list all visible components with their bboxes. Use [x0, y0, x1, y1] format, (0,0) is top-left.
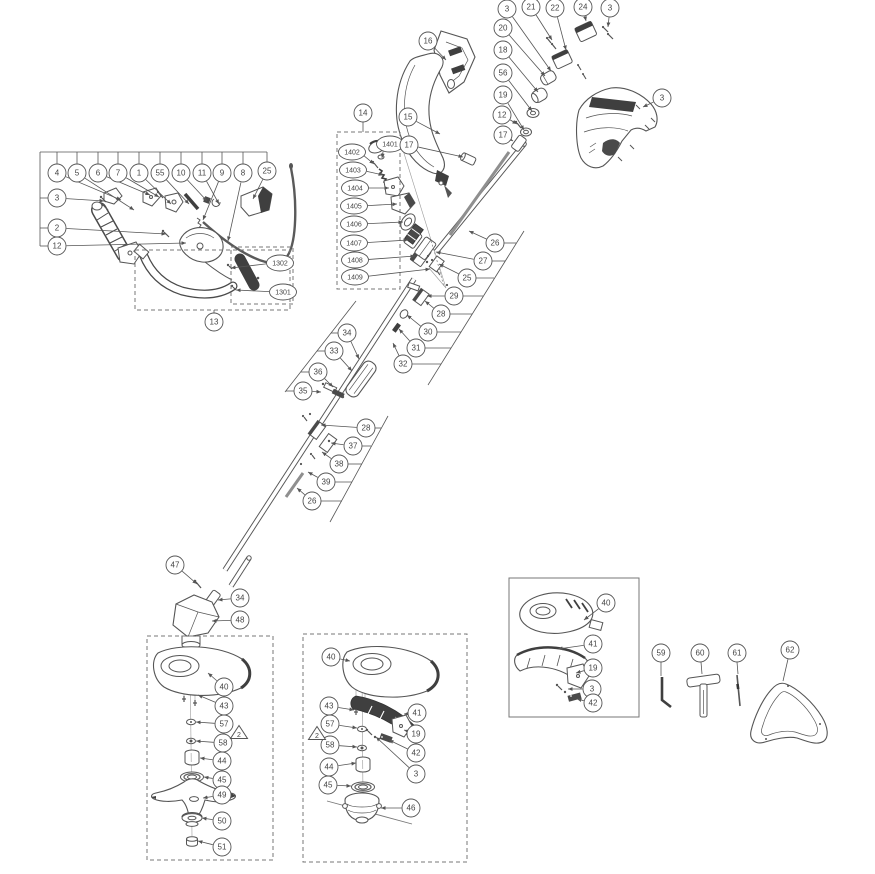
leader-line-45 — [337, 785, 351, 786]
callout-number: 57 — [326, 720, 335, 729]
callout-number: 59 — [657, 649, 666, 658]
callout-3: 3 — [601, 0, 619, 17]
callout-35: 35 — [294, 382, 312, 400]
callout-1403: 1403 — [340, 162, 367, 178]
connector-line — [783, 659, 788, 681]
callout-number: 19 — [412, 730, 421, 739]
callout-42: 42 — [584, 694, 602, 712]
callout-number: 1406 — [346, 222, 362, 229]
callout-number: 49 — [218, 791, 227, 800]
callout-57: 57 — [215, 715, 233, 733]
callout-number: 34 — [343, 329, 352, 338]
lower-coupler-parts — [300, 413, 337, 465]
callout-number: 27 — [479, 257, 488, 266]
callout-12: 12 — [493, 106, 511, 124]
leader-line-57 — [339, 725, 357, 728]
callout-34: 34 — [231, 589, 249, 607]
callout-number: 37 — [349, 442, 358, 451]
callout-1: 1 — [130, 164, 148, 182]
callout-number: 22 — [551, 4, 560, 13]
callout-56: 56 — [494, 64, 512, 82]
callout-number: 1301 — [275, 290, 291, 297]
callout-number: 21 — [527, 3, 536, 12]
callout-48: 48 — [231, 611, 249, 629]
callout-55: 55 — [151, 164, 169, 182]
callout-number: 35 — [299, 387, 308, 396]
callout-39: 39 — [317, 473, 335, 491]
callout-37: 37 — [344, 437, 362, 455]
callout-1407: 1407 — [341, 235, 368, 251]
callout-number: 25 — [463, 274, 472, 283]
callout-19: 19 — [584, 659, 602, 677]
exploded-parts-diagram-page: 3212224320185619121734567155101198253212… — [0, 0, 875, 874]
leader-line-26 — [469, 231, 486, 239]
callout-11: 11 — [193, 164, 211, 182]
leader-line-25 — [439, 264, 459, 274]
callout-1402: 1402 — [339, 144, 366, 160]
callout-number: 39 — [322, 478, 331, 487]
leader-line-50 — [202, 818, 213, 820]
callout-10: 10 — [172, 164, 190, 182]
callout-number: 1401 — [382, 142, 398, 149]
leader-line-45 — [204, 777, 213, 778]
connector-line — [737, 662, 738, 674]
exploded-parts-diagram: 3212224320185619121734567155101198253212… — [0, 0, 875, 874]
callout-number: 36 — [314, 368, 323, 377]
leader-line-43 — [198, 695, 215, 702]
callout-number: 1408 — [347, 258, 363, 265]
callout-number: 26 — [491, 239, 500, 248]
leader-line-34 — [351, 342, 359, 359]
warning-triangle-number: 2 — [315, 733, 319, 740]
callout-62: 62 — [781, 641, 799, 659]
callout-1409: 1409 — [342, 269, 369, 285]
callout-1301: 1301 — [270, 284, 297, 300]
leader-line-41 — [558, 645, 584, 649]
callout-3: 3 — [498, 0, 516, 18]
callout-40: 40 — [322, 648, 340, 666]
leader-line-57 — [196, 722, 215, 723]
leader-line-3 — [512, 17, 551, 71]
leader-line-34 — [218, 599, 231, 600]
leader-line-28 — [425, 301, 434, 308]
leader-line-24 — [585, 16, 586, 21]
leader-line-1406 — [368, 222, 403, 224]
callout-1404: 1404 — [342, 180, 369, 196]
callout-22: 22 — [546, 0, 564, 17]
callout-number: 29 — [450, 292, 459, 301]
callout-27: 27 — [474, 252, 492, 270]
callout-number: 3 — [608, 4, 613, 13]
callout-14: 14 — [354, 104, 372, 122]
blade-guard-assembly-left — [151, 646, 250, 846]
cable-end-ferrule — [460, 152, 477, 166]
callout-45: 45 — [319, 776, 337, 794]
callout-number: 45 — [218, 776, 227, 785]
callout-number: 1302 — [272, 261, 288, 268]
callout-number: 14 — [359, 109, 368, 118]
leader-line-1402 — [364, 156, 374, 164]
callout-number: 41 — [413, 709, 422, 718]
callout-number: 32 — [399, 360, 408, 369]
callout-1406: 1406 — [341, 216, 368, 232]
callout-31: 31 — [407, 339, 425, 357]
callout-number: 43 — [220, 702, 229, 711]
callout-number: 15 — [404, 113, 413, 122]
callout-1302: 1302 — [267, 255, 294, 271]
callout-number: 42 — [589, 699, 598, 708]
callout-12: 12 — [48, 237, 66, 255]
callout-1401: 1401 — [377, 136, 404, 152]
callout-number: 43 — [325, 702, 334, 711]
callout-40: 40 — [597, 594, 615, 612]
leader-line-42 — [389, 740, 407, 749]
callout-number: 30 — [424, 328, 433, 337]
callout-number: 20 — [499, 24, 508, 33]
callout-47: 47 — [166, 556, 184, 574]
callout-number: 3 — [505, 5, 510, 14]
callout-19: 19 — [407, 725, 425, 743]
callout-40: 40 — [215, 678, 233, 696]
leader-line-30 — [407, 315, 421, 326]
callout-number: 1404 — [347, 186, 363, 193]
callout-number: 1407 — [346, 241, 362, 248]
callout-number: 9 — [220, 169, 225, 178]
tool-parts — [662, 674, 827, 743]
leader-line-8 — [228, 182, 241, 241]
callout-number: 40 — [602, 599, 611, 608]
callout-32: 32 — [394, 355, 412, 373]
callout-number: 28 — [362, 424, 371, 433]
callout-28: 28 — [432, 305, 450, 323]
callout-number: 46 — [407, 804, 416, 813]
callout-number: 44 — [325, 763, 334, 772]
leader-line-1407 — [368, 240, 408, 243]
callout-number: 17 — [499, 131, 508, 140]
callout-57: 57 — [321, 715, 339, 733]
blade-cover — [751, 683, 828, 743]
callout-60: 60 — [691, 644, 709, 662]
callout-5: 5 — [68, 164, 86, 182]
callout-number: 38 — [335, 460, 344, 469]
callout-46: 46 — [402, 799, 420, 817]
callout-number: 4 — [55, 169, 60, 178]
leader-line-58 — [339, 746, 357, 747]
callout-43: 43 — [320, 697, 338, 715]
callout-44: 44 — [320, 758, 338, 776]
gear-head-assembly — [173, 580, 221, 649]
callout-number: 26 — [308, 497, 317, 506]
leader-line-42 — [577, 699, 584, 701]
leader-line-3 — [66, 199, 104, 201]
callout-number: 48 — [236, 616, 245, 625]
motor-housing — [577, 88, 658, 168]
callout-number: 51 — [218, 843, 227, 852]
callout-9: 9 — [213, 164, 231, 182]
callout-number: 31 — [412, 344, 421, 353]
callout-number: 44 — [218, 757, 227, 766]
callout-1408: 1408 — [342, 252, 369, 268]
callout-2: 2 — [48, 219, 66, 237]
callout-number: 24 — [579, 3, 588, 12]
callout-number: 25 — [263, 167, 272, 176]
callout-number: 58 — [219, 739, 228, 748]
callout-3: 3 — [407, 765, 425, 783]
connector-line — [701, 662, 702, 674]
callout-number: 1405 — [346, 204, 362, 211]
callout-number: 3 — [414, 770, 419, 779]
callout-36: 36 — [309, 363, 327, 381]
callout-8: 8 — [234, 164, 252, 182]
leader-line-38 — [322, 452, 331, 459]
rear-handle-bracket — [180, 228, 232, 280]
pin-rod — [737, 675, 740, 706]
callout-number: 18 — [499, 46, 508, 55]
callout-30: 30 — [419, 323, 437, 341]
t-wrench — [686, 674, 720, 717]
callout-41: 41 — [408, 704, 426, 722]
callout-number: 3 — [55, 194, 60, 203]
warning-triangle-2: 2 — [231, 726, 248, 740]
leader-line-21 — [536, 15, 552, 40]
callout-58: 58 — [214, 734, 232, 752]
callout-number: 3 — [590, 685, 595, 694]
callout-number: 60 — [696, 649, 705, 658]
callout-59: 59 — [652, 644, 670, 662]
leader-line-39 — [308, 472, 318, 477]
callout-15: 15 — [399, 108, 417, 126]
callout-number: 8 — [241, 169, 246, 178]
callout-61: 61 — [728, 644, 746, 662]
callout-20: 20 — [494, 19, 512, 37]
leader-line-22 — [557, 17, 566, 50]
callout-7: 7 — [109, 164, 127, 182]
callout-number: 42 — [412, 749, 421, 758]
callout-number: 34 — [236, 594, 245, 603]
callout-29: 29 — [445, 287, 463, 305]
leader-line-43 — [338, 708, 354, 710]
callout-28: 28 — [357, 419, 375, 437]
callout-number: 12 — [498, 111, 507, 120]
callout-number: 5 — [75, 169, 80, 178]
callout-42: 42 — [407, 744, 425, 762]
callout-number: 7 — [116, 169, 121, 178]
callout-3: 3 — [653, 89, 671, 107]
leader-line-28 — [321, 425, 357, 427]
callout-number: 16 — [424, 37, 433, 46]
callout-number: 19 — [589, 664, 598, 673]
callout-13: 13 — [205, 313, 223, 331]
callout-number: 55 — [156, 169, 165, 178]
leader-line-58 — [196, 741, 214, 742]
callout-17: 17 — [494, 126, 512, 144]
callout-49: 49 — [213, 786, 231, 804]
warning-triangle-number: 2 — [237, 732, 241, 739]
leader-line-33 — [340, 358, 352, 371]
callout-number: 3 — [660, 94, 665, 103]
callout-number: 58 — [326, 741, 335, 750]
leader-line-32 — [393, 343, 399, 355]
leader-line-3 — [608, 17, 609, 27]
callout-51: 51 — [213, 838, 231, 856]
callout-number: 40 — [220, 683, 229, 692]
callout-24: 24 — [574, 0, 592, 16]
callout-33: 33 — [325, 342, 343, 360]
callout-3: 3 — [48, 189, 66, 207]
callout-number: 50 — [218, 817, 227, 826]
callout-1405: 1405 — [341, 198, 368, 214]
callout-number: 1 — [137, 169, 142, 178]
callout-17: 17 — [400, 136, 418, 154]
leader-line-17 — [511, 140, 513, 141]
leader-line-44 — [338, 763, 356, 766]
callout-number: 61 — [733, 649, 742, 658]
callout-number: 57 — [220, 720, 229, 729]
leader-line-47 — [182, 571, 197, 584]
allen-key — [662, 677, 671, 707]
callout-26: 26 — [486, 234, 504, 252]
callout-number: 12 — [53, 242, 62, 251]
callout-25: 25 — [458, 269, 476, 287]
callout-number: 1409 — [347, 275, 363, 282]
callout-number: 11 — [198, 169, 207, 178]
callout-4: 4 — [48, 164, 66, 182]
callout-18: 18 — [494, 41, 512, 59]
callout-number: 1403 — [345, 168, 361, 175]
leader-line-44 — [200, 758, 213, 760]
callout-50: 50 — [213, 812, 231, 830]
leader-line-27 — [436, 252, 474, 259]
callout-number: 13 — [210, 318, 219, 327]
callout-41: 41 — [584, 635, 602, 653]
callout-number: 17 — [405, 141, 414, 150]
callout-44: 44 — [213, 752, 231, 770]
callout-number: 6 — [96, 169, 101, 178]
callout-number: 45 — [324, 781, 333, 790]
callout-number: 33 — [330, 347, 339, 356]
callout-number: 10 — [177, 169, 186, 178]
callout-26: 26 — [303, 492, 321, 510]
drive-cable-upper — [450, 152, 509, 235]
callout-number: 41 — [589, 640, 598, 649]
callout-21: 21 — [522, 0, 540, 16]
callout-number: 40 — [327, 653, 336, 662]
callout-number: 28 — [437, 310, 446, 319]
leader-line-51 — [198, 841, 213, 845]
callout-34: 34 — [338, 324, 356, 342]
callout-number: 47 — [171, 561, 180, 570]
callout-38: 38 — [330, 455, 348, 473]
callout-number: 2 — [55, 224, 60, 233]
callout-number: 56 — [499, 69, 508, 78]
leader-line-1409 — [369, 269, 430, 276]
callout-43: 43 — [215, 697, 233, 715]
callout-16: 16 — [419, 32, 437, 50]
callout-19: 19 — [494, 86, 512, 104]
leader-line-31 — [399, 329, 410, 341]
callout-number: 19 — [499, 91, 508, 100]
callout-6: 6 — [89, 164, 107, 182]
leader-line-1408 — [369, 256, 415, 259]
callout-number: 1402 — [344, 150, 360, 157]
leader-line-26 — [297, 488, 305, 495]
callout-25: 25 — [258, 162, 276, 180]
callout-number: 62 — [786, 646, 795, 655]
